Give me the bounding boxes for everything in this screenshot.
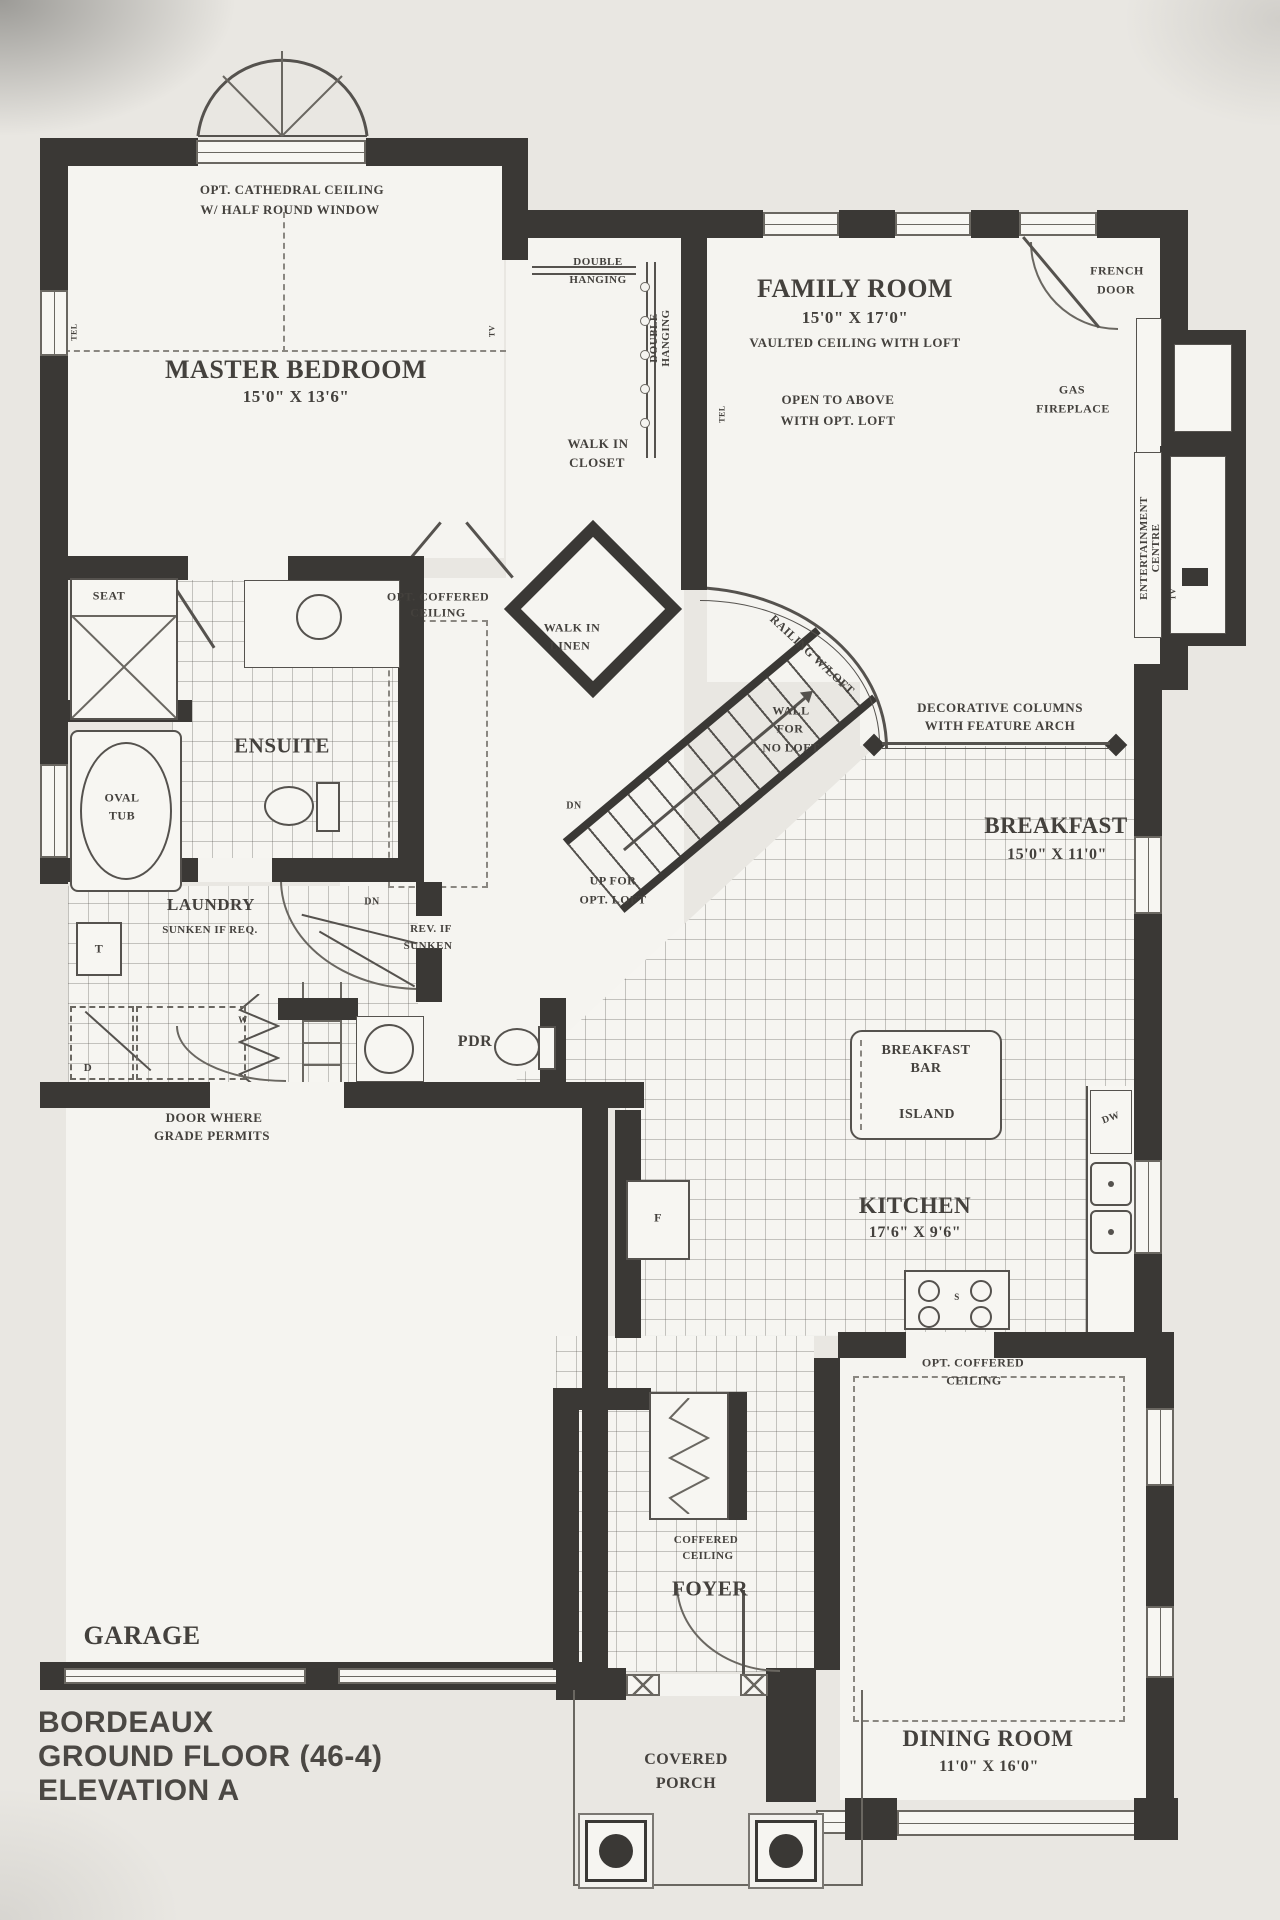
decorative-columns-label2: WITH FEATURE ARCH (925, 718, 1076, 734)
breakfast-bar-label2: BAR (910, 1061, 941, 1077)
window (763, 212, 839, 236)
burner-icon (918, 1306, 940, 1328)
room-dims-family-room: 15'0" X 17'0" (802, 308, 909, 328)
french-door-label2: DOOR (1097, 283, 1135, 298)
entertainment-centre-label: ENTERTAINMENT CENTRE (1138, 496, 1162, 600)
burner-icon (970, 1280, 992, 1302)
wall-segment (839, 210, 895, 238)
window (40, 764, 68, 858)
breakfast-bar-label: BREAKFAST (881, 1043, 970, 1059)
gas-fireplace-label2: FIREPLACE (1036, 402, 1110, 417)
cased-opening (906, 1332, 994, 1358)
dryer-box (70, 1006, 134, 1080)
wall-segment (1134, 914, 1162, 1160)
burner-icon (970, 1306, 992, 1328)
window (1019, 212, 1097, 236)
washer-label: W (238, 1015, 248, 1025)
up-for-loft-label2: OPT. LOFT (580, 893, 647, 908)
entertainment-niche (1170, 456, 1226, 634)
wall-segment (416, 948, 442, 1002)
drawing-title-block: BORDEAUX GROUND FLOOR (46-4) ELEVATION A (38, 1706, 383, 1808)
wall-segment (1146, 1486, 1174, 1606)
up-for-loft-label: UP FOR (590, 874, 637, 889)
wall-segment (288, 556, 424, 580)
wall-segment (553, 1388, 579, 1670)
porch-column-icon (585, 1820, 647, 1882)
laundry-tub-label: T (95, 942, 104, 957)
foyer-coffered-label: COFFERED (674, 1534, 739, 1546)
window (897, 1810, 1141, 1836)
rev-if-sunken-label2: SUNKEN (404, 940, 453, 952)
dn-label: DN (364, 897, 379, 908)
wall-segment (553, 1388, 651, 1410)
seat-label: SEAT (93, 589, 125, 604)
garage-door (338, 1668, 578, 1684)
wall-segment (502, 138, 528, 260)
wall-segment (814, 1358, 840, 1670)
wall-segment (1146, 1338, 1174, 1408)
wall-segment (46, 138, 198, 166)
garage-door-post (306, 1662, 338, 1690)
gas-fireplace-label: GAS (1059, 383, 1085, 398)
dryer-label: D (84, 1062, 92, 1074)
open-to-above-note2: WITH OPT. LOFT (781, 413, 896, 429)
hanger-icon (640, 384, 650, 394)
window (196, 140, 366, 164)
wall-segment (1097, 210, 1188, 238)
foyer-coffered-label2: CEILING (682, 1550, 733, 1562)
room-name-ensuite: ENSUITE (234, 734, 330, 759)
family-room-note: VAULTED CEILING WITH LOFT (749, 335, 960, 351)
room-dims-dining: 11'0" X 16'0" (939, 1758, 1039, 1776)
stove-label: S (954, 1292, 960, 1302)
cathedral-dash-vertical (283, 212, 285, 352)
pdr-toilet-bowl (494, 1028, 540, 1066)
vanity-sink (296, 594, 342, 640)
covered-porch-label2: PORCH (656, 1775, 716, 1793)
double-hanging-label: DOUBLE (573, 256, 622, 268)
decorative-columns-label: DECORATIVE COLUMNS (917, 700, 1083, 716)
hanger-icon (640, 282, 650, 292)
room-name-garage: GARAGE (83, 1621, 200, 1651)
open-to-above-note: OPEN TO ABOVE (782, 392, 895, 408)
island-bar-dash (860, 1040, 862, 1130)
room-name-family-room: FAMILY ROOM (757, 274, 953, 304)
window (40, 290, 68, 356)
walk-in-closet-label2: CLOSET (569, 455, 625, 471)
wall-no-loft-label: WALL (772, 704, 809, 719)
door-opening-grade (210, 1082, 344, 1108)
island-label: ISLAND (899, 1107, 955, 1123)
porch-column-icon (755, 1820, 817, 1882)
tv-label: TV (1169, 588, 1178, 600)
door-grade-note2: GRADE PERMITS (154, 1128, 270, 1144)
room-name-dining: DINING ROOM (903, 1726, 1074, 1752)
door-opening (188, 556, 288, 580)
rev-if-sunken-label: REV. IF (410, 923, 452, 935)
wall-segment (971, 210, 1019, 238)
half-round-window-icon (190, 26, 375, 140)
window (1146, 1408, 1174, 1486)
feature-arch-line (882, 748, 1110, 749)
wall-segment (729, 1392, 747, 1520)
covered-porch-label: COVERED (644, 1751, 728, 1769)
gas-fireplace-box (1174, 344, 1232, 432)
oval-tub-label: OVAL (104, 791, 139, 806)
column-circle (599, 1834, 633, 1868)
tv-block (1182, 568, 1208, 586)
column-circle (769, 1834, 803, 1868)
room-name-master-bedroom: MASTER BEDROOM (165, 355, 427, 385)
dining-coffered-label2: CEILING (946, 1374, 1002, 1389)
dn-label: DN (566, 801, 581, 812)
double-hanging-label2: HANGING (569, 274, 626, 286)
room-name-laundry: LAUNDRY (167, 895, 255, 915)
hanger-icon (640, 418, 650, 428)
wall-segment (278, 998, 358, 1020)
wall-segment (1134, 1798, 1178, 1840)
room-dims-breakfast: 15'0" X 11'0" (1007, 846, 1107, 864)
double-hanging-vertical: DOUBLE HANGING (648, 309, 672, 366)
sink-drain-dot (1108, 1181, 1114, 1187)
window (1146, 1606, 1174, 1678)
wall-segment (416, 882, 442, 916)
cathedral-ceiling-note: OPT. CATHEDRAL CEILING (200, 182, 384, 198)
wall-segment (520, 210, 763, 238)
tel-label: TEL (718, 405, 727, 423)
dining-coffered-label: OPT. COFFERED (922, 1356, 1024, 1371)
tel-label: TEL (70, 323, 79, 341)
room-name-breakfast: BREAKFAST (984, 813, 1127, 839)
wall-segment (681, 238, 707, 590)
cathedral-dash-horizontal (64, 350, 506, 352)
wall-segment (1160, 238, 1188, 330)
pdr-toilet-tank (538, 1026, 556, 1070)
door-grade-note: DOOR WHERE (166, 1110, 263, 1126)
wall-segment (1134, 1254, 1162, 1338)
wall-segment (398, 580, 424, 882)
walk-in-closet-label: WALK IN (568, 436, 629, 452)
closet-zigzag (666, 1398, 712, 1514)
room-name-foyer: FOYER (672, 1577, 748, 1602)
wall-no-loft-label2: FOR (777, 722, 804, 737)
walk-in-linen-label2: LINEN (550, 639, 591, 654)
laundry-note: SUNKEN IF REQ. (162, 924, 258, 936)
cathedral-ceiling-note2: W/ HALF ROUND WINDOW (200, 202, 379, 218)
room-dims-kitchen: 17'6" X 9'6" (869, 1224, 961, 1242)
window (1134, 1160, 1162, 1254)
door-opening (198, 858, 272, 882)
plan-elevation: ELEVATION A (38, 1774, 383, 1808)
plan-floor: GROUND FLOOR (46-4) (38, 1740, 383, 1774)
wall-segment (344, 1082, 644, 1108)
sink-drain-dot (1108, 1229, 1114, 1235)
wall-segment (1134, 690, 1162, 836)
walk-in-linen-label: WALK IN (544, 621, 601, 636)
room-dims-master-bedroom: 15'0" X 13'6" (243, 387, 350, 407)
toilet-bowl (264, 786, 314, 826)
pdr-sink (364, 1024, 414, 1074)
oval-tub-label2: TUB (109, 809, 135, 824)
garage-door (64, 1668, 306, 1684)
wall-segment (40, 1082, 210, 1108)
dining-coffered-dash-rect (853, 1376, 1125, 1722)
window (1134, 836, 1162, 914)
wall-segment (1134, 664, 1188, 690)
feature-arch-line (882, 742, 1110, 745)
french-door-label: FRENCH (1090, 264, 1144, 279)
wall-segment (838, 1332, 1174, 1358)
toilet-tank (316, 782, 340, 832)
window (895, 212, 971, 236)
room-name-pdr: PDR (458, 1033, 492, 1051)
room-name-kitchen: KITCHEN (859, 1193, 971, 1219)
burner-icon (918, 1280, 940, 1302)
front-door-leaf (742, 1590, 745, 1674)
plan-name: BORDEAUX (38, 1706, 383, 1740)
wall-segment (272, 858, 424, 882)
wall-no-loft-label3: NO LOFT (762, 741, 819, 756)
fireplace-hearth (1136, 318, 1162, 460)
floor-plan: OPT. CATHEDRAL CEILING W/ HALF ROUND WIN… (0, 0, 1280, 1920)
garage-floor (66, 1108, 582, 1664)
wall-segment (582, 1108, 608, 1664)
opt-coffered-label2: CEILING (410, 606, 466, 621)
wall-segment (1146, 1678, 1174, 1802)
tv-label: TV (488, 325, 497, 337)
wall-segment (40, 556, 188, 580)
washer-box (136, 1006, 246, 1080)
fridge-label: F (654, 1211, 662, 1226)
opt-coffered-label: OPT. COFFERED (387, 590, 489, 605)
